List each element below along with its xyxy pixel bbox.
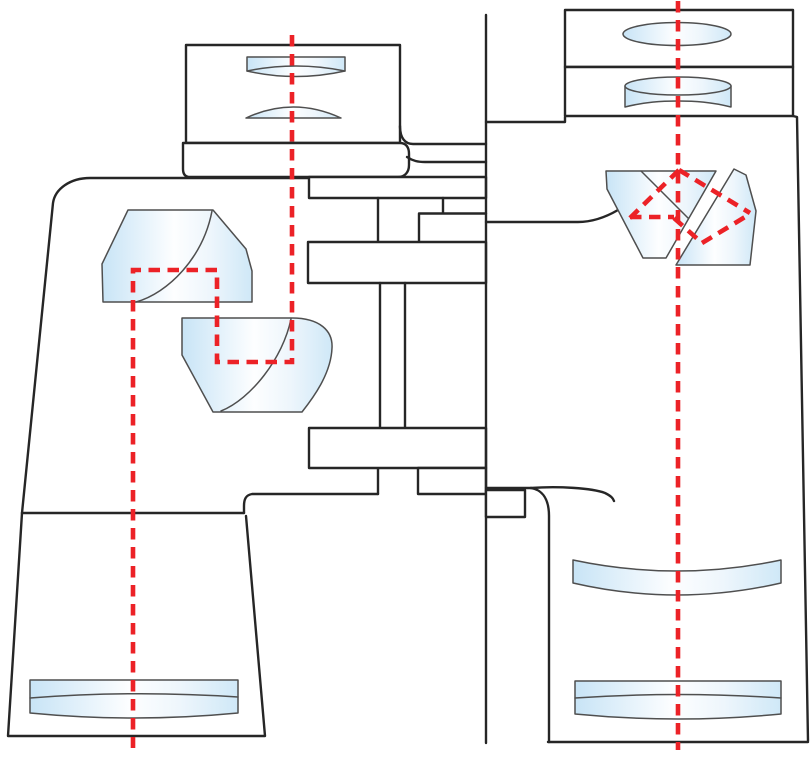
left-barrel-seam-step — [244, 494, 378, 513]
right-barrel-neck-step — [486, 117, 565, 122]
right-barrel-left-edge — [531, 488, 549, 742]
hinge-plate-top — [309, 177, 486, 198]
hinge-bridge-lower-line — [407, 157, 486, 162]
left-porro-prism-lower — [182, 318, 332, 412]
hinge-bridge-upper-line — [400, 126, 486, 144]
hinge-step-lines — [378, 198, 486, 242]
binoculars-diagram-page — [0, 0, 812, 757]
hinge-block-right — [486, 490, 525, 517]
hinge-plate-bottom — [309, 428, 486, 468]
diagram-canvas — [0, 0, 812, 757]
hinge-post — [380, 283, 405, 428]
right-barrel-prism-shelf — [486, 210, 618, 222]
hinge-block-left — [418, 468, 486, 494]
left-porro-prism-upper — [102, 210, 252, 302]
left-eyepiece-flange — [183, 143, 409, 177]
hinge-plate-middle — [308, 242, 486, 283]
right-barrel-outer-edge — [793, 116, 808, 741]
